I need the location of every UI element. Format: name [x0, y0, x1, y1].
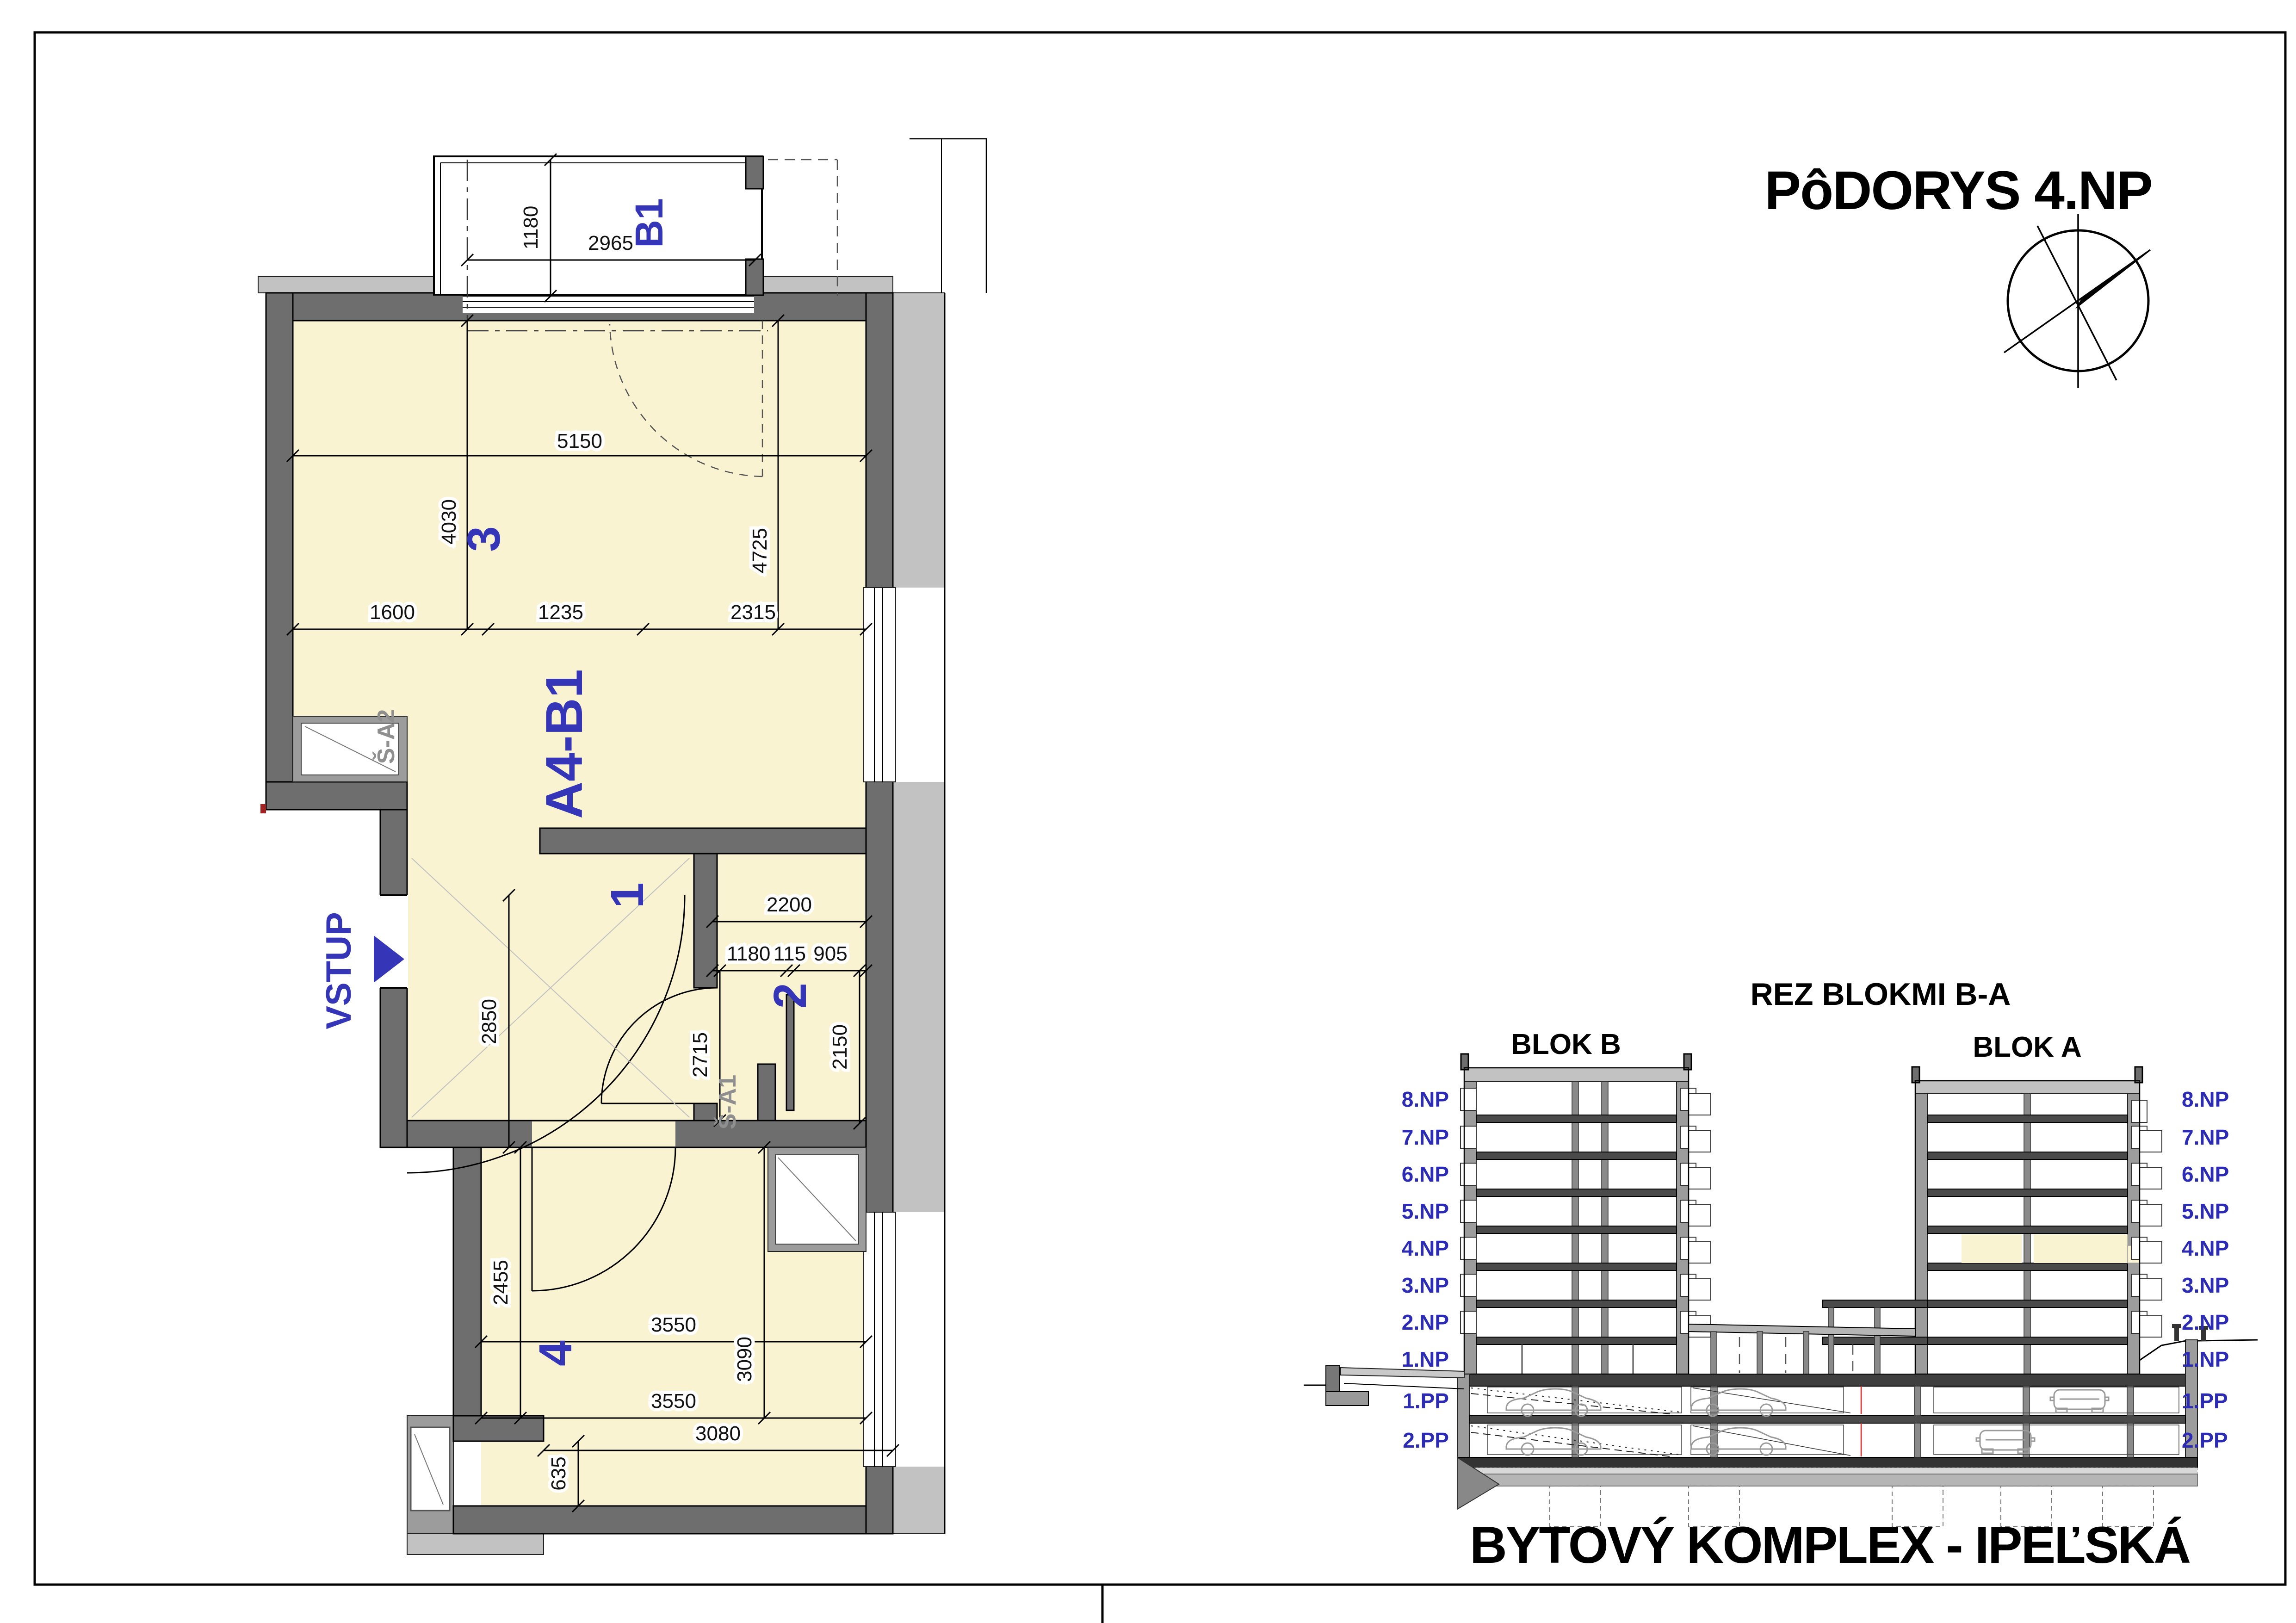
level-right-2pp: 2.PP — [2182, 1428, 2228, 1452]
dim-corridor-height: 2715 — [689, 1032, 712, 1078]
unit-label: A4-B1 — [535, 669, 593, 819]
dim-bedroom-height-left: 2455 — [489, 1260, 512, 1305]
dim-bath-seg-a: 1180 — [727, 942, 771, 965]
entrance-label: VSTUP — [319, 912, 359, 1029]
shaft-sa1 — [768, 1147, 866, 1251]
level-left-4np: 4.NP — [1402, 1236, 1449, 1260]
dim-bath-seg-b: 115 — [774, 942, 806, 965]
section-view: REZ BLOKMI B-A BLOK B BLOK A — [1304, 977, 2258, 1527]
level-right-1np: 1.NP — [2182, 1347, 2229, 1371]
blok-a-west-wing — [1823, 1300, 1927, 1374]
dim-bedroom-width-bottom: 3550 — [651, 1390, 696, 1412]
dim-bedroom-notch: 635 — [547, 1456, 570, 1490]
page-title: PôDORYS 4.NP — [1764, 160, 2152, 221]
dim-seg-2315: 2315 — [730, 601, 776, 624]
compass-icon — [2004, 214, 2150, 388]
level-left-5np: 5.NP — [1402, 1199, 1449, 1223]
neighbor-balcony-outline — [768, 160, 837, 296]
level-right-5np: 5.NP — [2182, 1199, 2229, 1223]
level-right-4np: 4.NP — [2182, 1236, 2229, 1260]
survey-mark — [260, 804, 266, 813]
level-right-2np: 2.NP — [2182, 1310, 2229, 1334]
floor-plan: 5150 1600 1235 2315 2200 1180 115 905 35… — [258, 139, 986, 1555]
block-a-title: BLOK A — [1973, 1031, 2081, 1063]
block-b-title: BLOK B — [1511, 1028, 1621, 1060]
drawing-canvas: PôDORYS 4.NP — [0, 0, 2296, 1623]
bedroom-door-opening — [532, 1121, 675, 1146]
room-label-bedroom: 4 — [530, 1340, 582, 1366]
level-labels-right: 8.NP 7.NP 6.NP 5.NP 4.NP 3.NP 2.NP 1.NP … — [2182, 1087, 2229, 1452]
neighbor-structure — [910, 139, 986, 293]
dim-seg-1235: 1235 — [538, 601, 583, 624]
level-right-6np: 6.NP — [2182, 1162, 2229, 1186]
shaft-label-sa2: Š-A2 — [372, 709, 400, 764]
balcony-door-window — [463, 293, 754, 313]
level-left-3np: 3.NP — [1402, 1273, 1449, 1297]
dim-bath-height: 2150 — [829, 1024, 851, 1070]
level-left-8np: 8.NP — [1402, 1087, 1449, 1111]
window-east-1 — [863, 588, 896, 782]
dim-living-width: 5150 — [557, 430, 602, 452]
level-left-1np: 1.NP — [1402, 1347, 1449, 1371]
dim-balcony-depth: 1180 — [520, 206, 542, 250]
level-labels-left: 8.NP 7.NP 6.NP 5.NP 4.NP 3.NP 2.NP 1.NP … — [1402, 1087, 1449, 1452]
drawing-sheet: PôDORYS 4.NP — [0, 0, 2296, 1623]
basement — [1457, 1340, 2197, 1527]
level-left-2pp: 2.PP — [1403, 1428, 1449, 1452]
level-right-8np: 8.NP — [2182, 1087, 2229, 1111]
level-right-7np: 7.NP — [2182, 1125, 2229, 1149]
dim-bath-width: 2200 — [767, 893, 812, 916]
dim-living-height-left: 4030 — [438, 499, 460, 545]
level-left-1pp: 1.PP — [1403, 1389, 1449, 1413]
dim-seg-1600: 1600 — [370, 601, 415, 624]
level-right-3np: 3.NP — [2182, 1273, 2229, 1297]
level-right-1pp: 1.PP — [2182, 1389, 2228, 1413]
blok-b — [1461, 1054, 1711, 1374]
project-title: BYTOVÝ KOMPLEX - IPEĽSKÁ — [1470, 1516, 2190, 1574]
level-left-6np: 6.NP — [1402, 1162, 1449, 1186]
room-label-hall: 1 — [601, 882, 653, 908]
dim-hall-height: 2850 — [478, 999, 501, 1044]
dim-balcony-width: 2965 — [588, 232, 633, 254]
room-label-living: 3 — [458, 526, 510, 552]
dim-bedroom-width-top: 3550 — [651, 1313, 696, 1336]
dim-bedroom-height-right: 3090 — [733, 1337, 756, 1382]
level-left-2np: 2.NP — [1402, 1310, 1449, 1334]
compass-needle — [2075, 251, 2150, 309]
balcony-label: B1 — [627, 198, 671, 248]
shaft-label-sa1: Š-A1 — [714, 1075, 741, 1129]
dim-bedroom-width-outer: 3080 — [695, 1422, 741, 1445]
blok-a-highlight-4np — [1962, 1234, 2154, 1263]
level-left-7np: 7.NP — [1402, 1125, 1449, 1149]
dim-living-height-right: 4725 — [749, 528, 771, 573]
window-southwest — [411, 1427, 450, 1511]
room-label-bath: 2 — [764, 983, 816, 1009]
section-title: REZ BLOKMI B-A — [1751, 977, 2011, 1012]
podium — [1689, 1324, 1915, 1374]
dim-bath-seg-c: 905 — [813, 942, 847, 965]
